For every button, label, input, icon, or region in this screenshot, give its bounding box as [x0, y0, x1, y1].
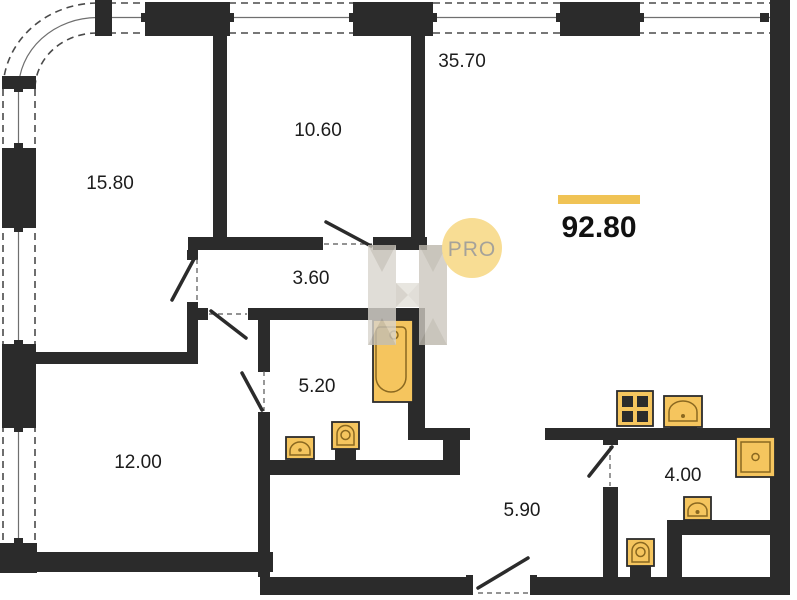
room-label-bedroom-top-middle: 10.60 — [294, 120, 342, 141]
total-area-accent-bar — [558, 195, 640, 204]
entrance-door — [478, 558, 530, 593]
floor-plan: PRO 92.80 35.70 15.80 10.60 3.60 5.20 12… — [0, 0, 797, 600]
room-label-bathroom: 5.20 — [299, 376, 336, 397]
toilet-icon — [332, 422, 359, 462]
room-label-living-kitchen: 35.70 — [438, 51, 486, 72]
floor-plan-canvas: PRO 92.80 35.70 15.80 10.60 3.60 5.20 12… — [0, 0, 797, 600]
door-to-bedroom-bottom-left — [209, 311, 247, 338]
door-to-bathroom — [242, 371, 264, 411]
room-label-bedroom-top-left: 15.80 — [86, 173, 134, 194]
door-to-wc — [589, 446, 612, 486]
room-label-hallway: 5.90 — [504, 500, 541, 521]
total-area-block: 92.80 — [558, 195, 640, 244]
square-basin-icon — [736, 437, 775, 477]
pro-badge-text: PRO — [448, 238, 497, 261]
washbasin-small-icon — [684, 497, 711, 523]
washbasin-icon — [286, 437, 314, 463]
door-to-bedroom-top-middle — [324, 222, 372, 246]
pro-badge: PRO — [442, 218, 502, 278]
room-label-corridor: 3.60 — [293, 268, 330, 289]
toilet-small-icon — [627, 539, 654, 579]
room-label-bedroom-bottom-left: 12.00 — [114, 452, 162, 473]
stove-4-burner-icon — [617, 391, 653, 426]
fixture-layer — [286, 320, 775, 579]
total-area-value: 92.80 — [561, 211, 636, 244]
door-to-bedroom-top-left — [172, 259, 197, 303]
room-label-wc: 4.00 — [665, 465, 702, 486]
kitchen-sink-icon — [664, 396, 702, 430]
